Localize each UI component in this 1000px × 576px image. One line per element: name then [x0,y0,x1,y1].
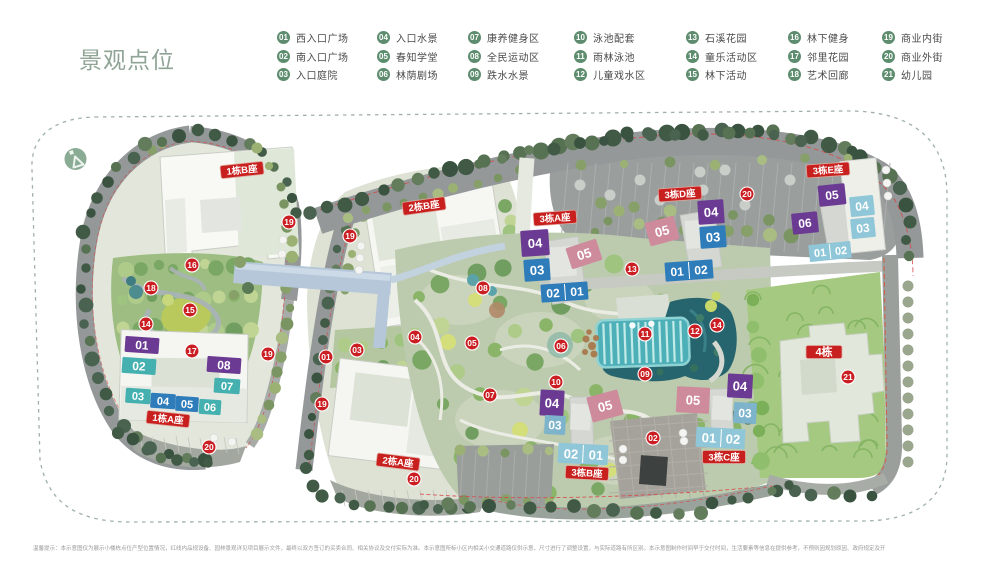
svg-text:20: 20 [742,189,752,199]
svg-text:19: 19 [263,349,273,359]
svg-text:07: 07 [220,381,233,394]
svg-text:3栋A座: 3栋A座 [539,211,571,225]
svg-text:02: 02 [546,286,561,301]
svg-text:03: 03 [856,221,871,236]
svg-text:04: 04 [732,378,748,394]
svg-text:3栋E座: 3栋E座 [812,163,844,177]
svg-text:01: 01 [813,247,826,260]
svg-text:3栋C座: 3栋C座 [708,451,740,463]
svg-text:02: 02 [694,263,709,278]
svg-text:3栋B座: 3栋B座 [571,466,603,480]
svg-text:04: 04 [855,199,870,214]
svg-text:03: 03 [529,262,544,278]
svg-text:20: 20 [204,442,214,452]
svg-text:13: 13 [627,264,637,274]
svg-text:04: 04 [410,332,420,342]
svg-text:16: 16 [187,260,197,270]
svg-text:4栋: 4栋 [815,344,832,358]
svg-text:01: 01 [570,284,585,299]
svg-text:04: 04 [544,395,560,411]
svg-text:21: 21 [843,372,853,382]
svg-text:01: 01 [701,430,716,446]
svg-text:07: 07 [485,390,495,400]
svg-text:20: 20 [409,474,419,484]
svg-text:02: 02 [834,245,847,258]
svg-text:11: 11 [641,329,650,339]
svg-text:03: 03 [131,391,144,404]
svg-text:05: 05 [467,338,477,348]
svg-text:19: 19 [345,231,355,241]
svg-text:14: 14 [141,319,151,329]
svg-text:09: 09 [640,369,650,379]
svg-text:19: 19 [284,217,294,227]
svg-text:03: 03 [352,345,362,355]
svg-text:18: 18 [146,283,156,293]
svg-text:02: 02 [648,433,658,443]
svg-text:08: 08 [217,358,232,373]
svg-text:04: 04 [527,235,543,251]
svg-text:05: 05 [180,399,193,412]
svg-text:17: 17 [187,346,197,356]
svg-text:02: 02 [132,359,147,374]
svg-text:02: 02 [563,446,578,462]
svg-text:19: 19 [317,399,327,409]
svg-text:06: 06 [556,341,566,351]
svg-text:04: 04 [156,396,170,409]
svg-text:10: 10 [551,377,561,387]
svg-text:05: 05 [685,392,700,408]
svg-text:01: 01 [670,264,685,279]
svg-text:3栋D座: 3栋D座 [664,187,696,201]
svg-text:01: 01 [321,352,331,362]
svg-text:06: 06 [203,402,216,415]
svg-text:01: 01 [135,338,150,353]
svg-text:14: 14 [712,320,722,330]
svg-text:03: 03 [548,418,562,433]
svg-text:12: 12 [690,326,700,336]
svg-text:08: 08 [478,283,488,293]
svg-text:02: 02 [725,431,740,447]
svg-text:01: 01 [588,447,603,463]
svg-text:06: 06 [798,216,813,231]
svg-text:15: 15 [185,305,195,315]
svg-text:03: 03 [738,406,752,421]
svg-text:03: 03 [705,229,720,245]
svg-text:04: 04 [703,204,719,220]
svg-text:05: 05 [825,188,840,203]
